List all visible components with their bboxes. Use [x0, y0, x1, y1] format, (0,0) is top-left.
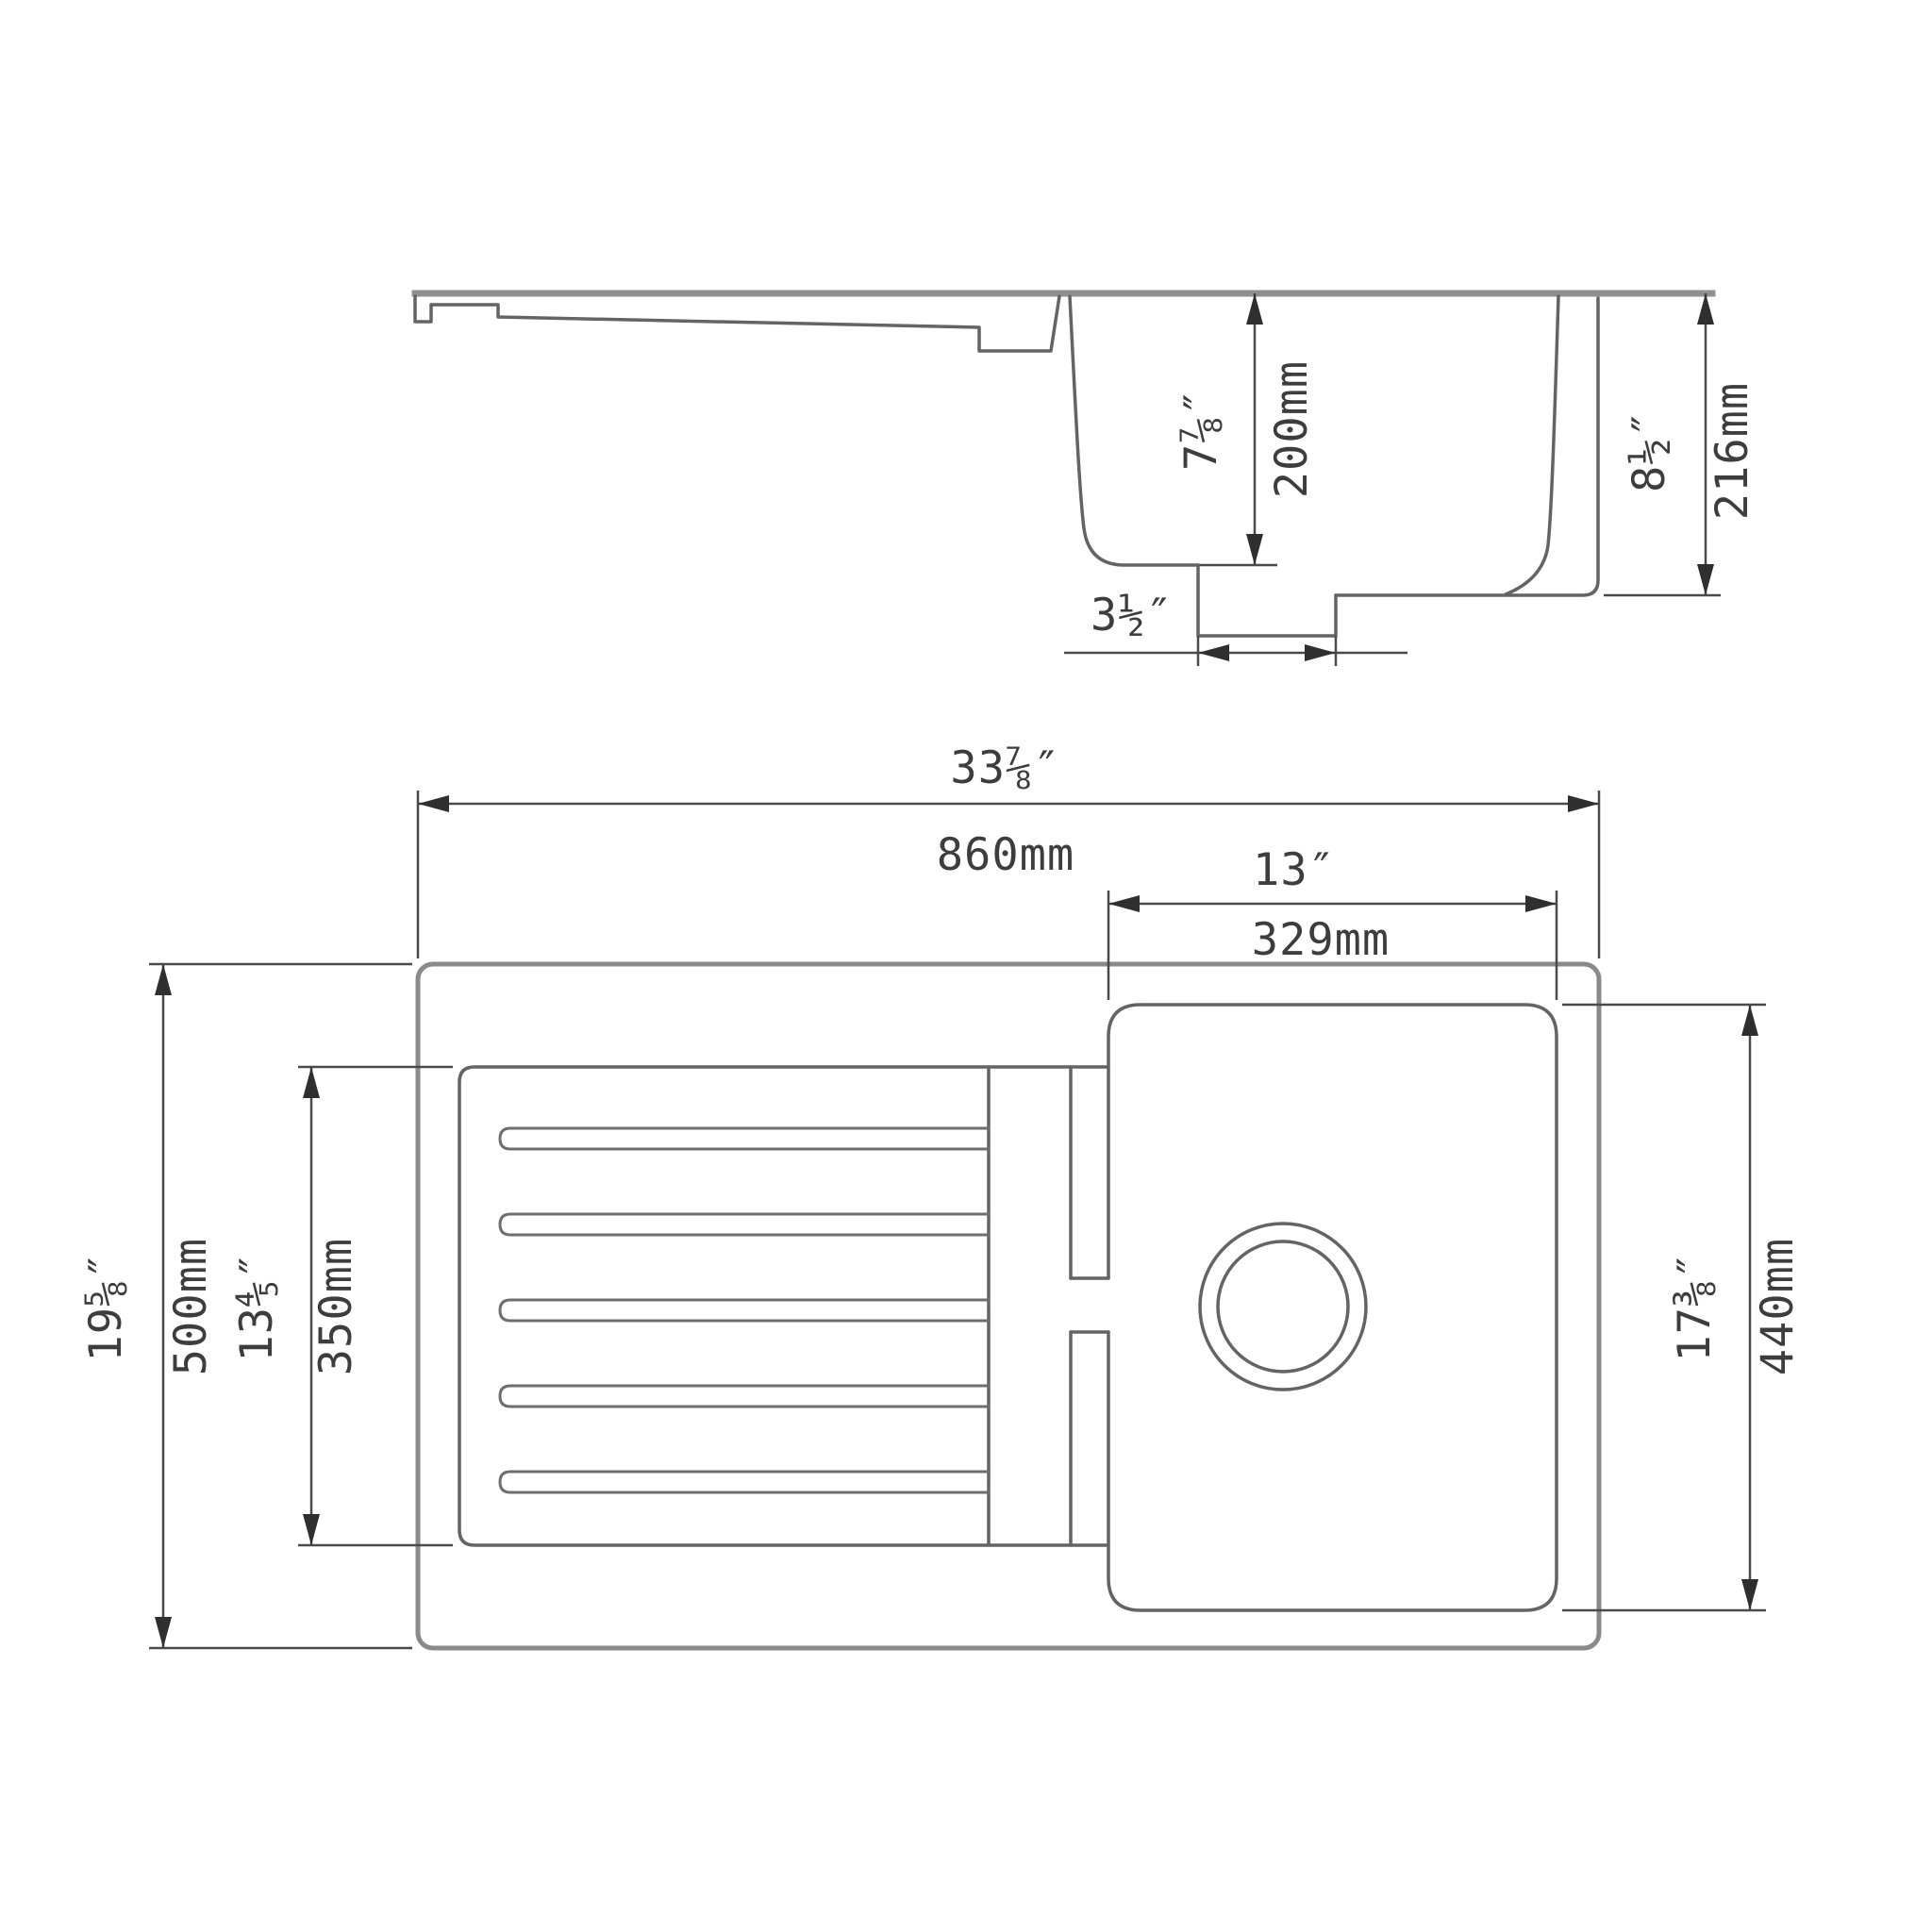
arrow-down-icon [1246, 534, 1263, 565]
plan-drainboard-recess [459, 1067, 989, 1545]
arrow-up-icon [1741, 1005, 1758, 1036]
side-drainboard-profile [431, 296, 1059, 351]
side-section-view: 7⅞″ 200mm 8½″ 216mm 3½″ [415, 293, 1758, 666]
sink-dimension-drawing: 7⅞″ 200mm 8½″ 216mm 3½″ [0, 0, 1932, 1932]
dim-drainboard-depth-inches: 13⅘″ [231, 1251, 283, 1361]
dim-bowl-length-inches: 17⅜″ [1669, 1251, 1721, 1361]
arrow-down-icon [303, 1514, 320, 1545]
arrow-right-icon [1525, 895, 1557, 912]
dim-overall-height: 8½″ 216mm [1604, 293, 1758, 595]
arrow-down-icon [155, 1617, 172, 1648]
arrow-up-icon [155, 964, 172, 995]
plan-bowl [1108, 1005, 1557, 1610]
dim-bowl-depth-inches: 7⅞″ [1175, 388, 1227, 471]
rib-5 [500, 1472, 989, 1492]
dim-overall-width: 33⅞″ 860mm [418, 742, 1599, 958]
dim-overall-depth-inches: 19⅝″ [80, 1251, 132, 1361]
drain-inner-circle [1218, 1241, 1348, 1372]
arrow-left-icon [418, 795, 449, 812]
rib-3 [500, 1300, 989, 1321]
dim-drain-inches: 3½″ [1091, 590, 1174, 641]
dim-overall-height-inches: 8½″ [1624, 409, 1675, 492]
dim-bowl-depth-mm: 200mm [1266, 360, 1318, 498]
arrow-left-icon [1108, 895, 1140, 912]
rib-1 [500, 1128, 989, 1149]
dim-drain-outlet: 3½″ [1064, 590, 1407, 666]
plan-channel-slots [1071, 1067, 1108, 1545]
dim-overall-width-inches: 33⅞″ [950, 742, 1060, 794]
side-left-lip [415, 296, 431, 322]
arrow-right-icon [1568, 795, 1599, 812]
dim-bowl-depth: 7⅞″ 200mm [1175, 293, 1318, 565]
side-drain-stub [1198, 565, 1336, 636]
side-bowl-right-wall [1506, 296, 1558, 594]
rib-4 [500, 1386, 989, 1407]
dim-bowl-width-inches: 13″ [1253, 844, 1336, 896]
dim-overall-depth-mm: 500mm [165, 1238, 217, 1375]
dim-overall-height-mm: 216mm [1707, 382, 1758, 520]
top-plan-view: 33⅞″ 860mm 13″ 329mm 19⅝″ 500mm [80, 742, 1804, 1648]
plan-drain-opening [1200, 1224, 1366, 1390]
arrow-up-icon [1246, 293, 1263, 325]
drain-outer-circle [1200, 1224, 1366, 1390]
arrow-up-icon [1697, 293, 1714, 325]
arrow-down-icon [1697, 564, 1714, 595]
dim-bowl-width-mm: 329mm [1252, 914, 1390, 966]
arrow-left-icon [1198, 644, 1229, 661]
arrow-down-icon [1741, 1579, 1758, 1610]
dim-drainboard-depth-mm: 350mm [310, 1238, 362, 1375]
plan-drainboard-ribs [500, 1128, 989, 1492]
dim-overall-width-mm: 860mm [937, 829, 1074, 881]
arrow-up-icon [303, 1067, 320, 1098]
arrow-right-icon [1305, 644, 1336, 661]
side-right-outer-wall [1336, 298, 1598, 595]
dim-bowl-length-mm: 440mm [1752, 1238, 1804, 1375]
dim-bowl-width: 13″ 329mm [1108, 844, 1557, 1000]
rib-2 [500, 1214, 989, 1235]
